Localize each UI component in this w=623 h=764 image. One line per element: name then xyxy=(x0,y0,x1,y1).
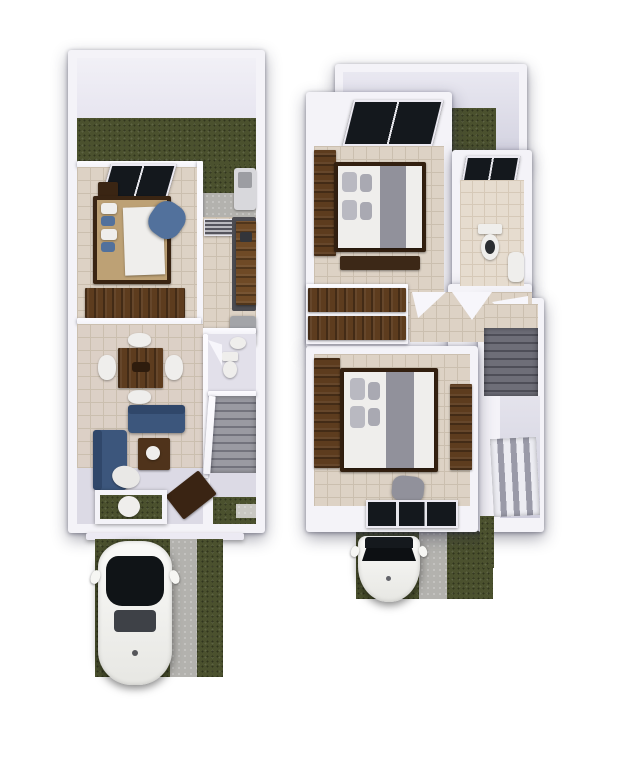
bathroom-sink2 xyxy=(508,252,524,282)
closet-shelf xyxy=(308,316,406,340)
wardrobe2 xyxy=(314,358,340,468)
master-closet xyxy=(314,150,336,256)
toilet2-seat xyxy=(485,240,495,254)
car2-windshield xyxy=(362,548,416,561)
bed2-runner xyxy=(386,372,414,468)
upper-floor-plan xyxy=(0,0,623,764)
closet-shelf xyxy=(308,288,406,312)
car2-emblem xyxy=(386,576,391,581)
bedroom2-window-icon xyxy=(366,500,458,528)
pillow-gray xyxy=(368,382,380,400)
pillow-gray xyxy=(350,378,365,400)
stair-landing2 xyxy=(484,304,538,328)
master-bed-runner xyxy=(380,166,406,248)
floor-plan-scene xyxy=(0,0,623,764)
pillow-gray xyxy=(342,172,357,192)
void-window-slats xyxy=(490,437,540,517)
bed-bench xyxy=(340,256,420,270)
toilet2-tank xyxy=(478,224,502,234)
pillow-gray xyxy=(342,200,357,220)
driveway2-path xyxy=(419,531,447,599)
stairs-down xyxy=(484,328,538,396)
pillow-gray xyxy=(360,174,372,192)
pillow-gray xyxy=(360,202,372,220)
master-window-icon xyxy=(342,100,443,146)
side-garden-strip xyxy=(480,516,494,568)
pillow-gray xyxy=(368,408,380,426)
desk2 xyxy=(450,384,472,470)
patio-void-grass xyxy=(450,108,496,152)
pillow-gray xyxy=(350,406,365,428)
car2-roof xyxy=(365,537,413,548)
bathroom-window-icon xyxy=(462,156,521,182)
